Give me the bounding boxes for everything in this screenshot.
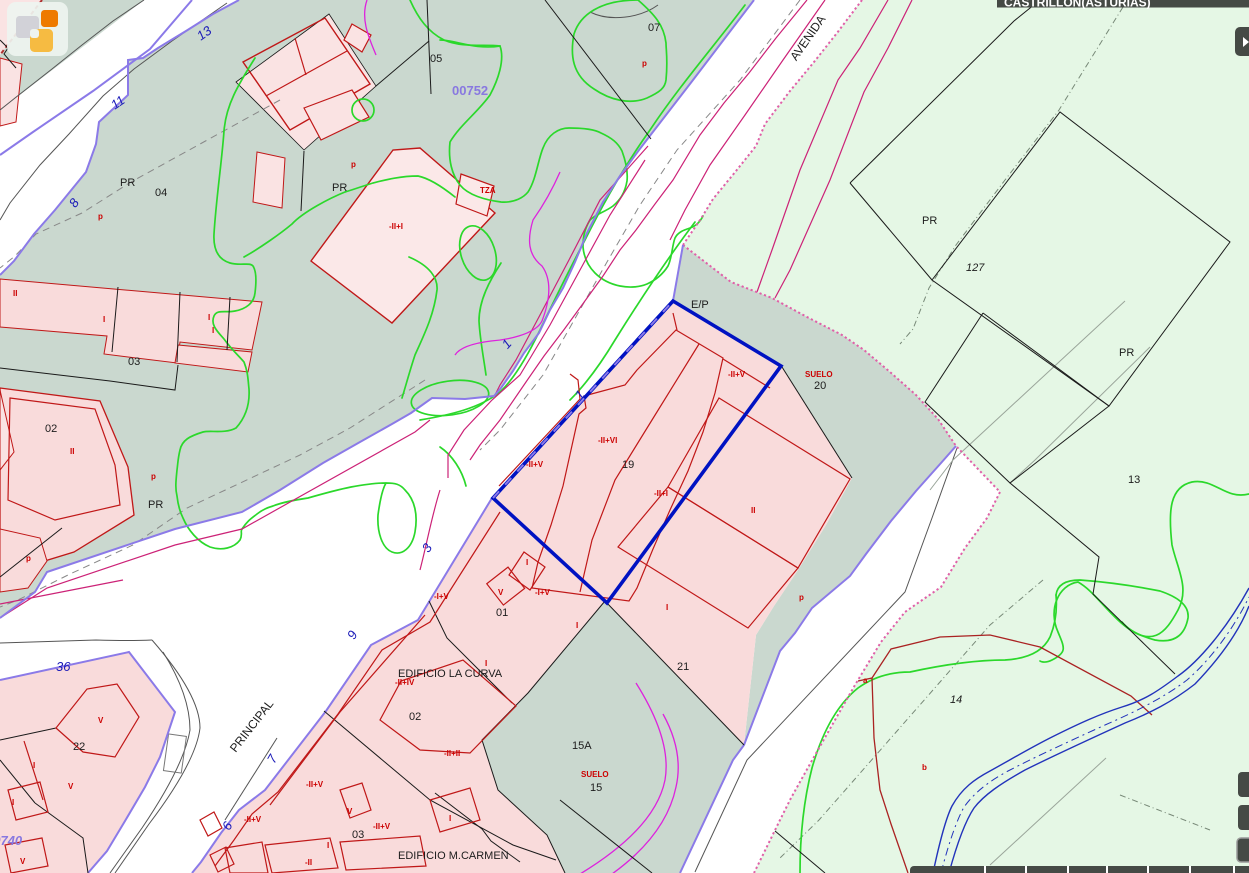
svg-text:II: II — [751, 506, 755, 515]
svg-text:I: I — [485, 659, 487, 668]
svg-text:I: I — [666, 603, 668, 612]
svg-text:-II+II: -II+II — [444, 749, 460, 758]
svg-text:127: 127 — [966, 262, 985, 274]
svg-text:05: 05 — [430, 53, 442, 65]
svg-text:I: I — [449, 814, 451, 823]
svg-text:a: a — [863, 676, 868, 685]
svg-text:15: 15 — [590, 782, 602, 794]
svg-text:-II+V: -II+V — [373, 822, 391, 831]
svg-text:19: 19 — [622, 459, 634, 471]
svg-text:-II+I: -II+I — [389, 222, 403, 231]
svg-text:36: 36 — [56, 659, 71, 674]
svg-text:-II+V: -II+V — [306, 780, 324, 789]
svg-text:V: V — [498, 588, 504, 597]
svg-text:04: 04 — [155, 187, 167, 199]
svg-text:20: 20 — [814, 380, 826, 392]
svg-text:-I+V: -I+V — [535, 588, 551, 597]
svg-text:p: p — [98, 212, 103, 221]
svg-text:PR: PR — [332, 182, 347, 194]
svg-text:-II+V: -II+V — [728, 370, 746, 379]
svg-text:p: p — [351, 160, 356, 169]
svg-text:I: I — [103, 315, 105, 324]
svg-text:I: I — [212, 326, 214, 335]
svg-text:01: 01 — [496, 607, 508, 619]
svg-text:02: 02 — [45, 423, 57, 435]
svg-text:I: I — [576, 621, 578, 630]
svg-text:p: p — [799, 593, 804, 602]
svg-text:V: V — [20, 857, 26, 866]
svg-text:TZA: TZA — [480, 186, 496, 195]
svg-text:02: 02 — [409, 711, 421, 723]
svg-text:03: 03 — [352, 829, 364, 841]
svg-text:p: p — [151, 472, 156, 481]
svg-text:SUELO: SUELO — [581, 770, 609, 779]
svg-text:15A: 15A — [572, 740, 592, 752]
svg-text:PR: PR — [1119, 347, 1134, 359]
svg-text:CASTRILLON(ASTURIAS): CASTRILLON(ASTURIAS) — [1004, 0, 1151, 10]
svg-text:V: V — [347, 807, 353, 816]
svg-text:-II+IV: -II+IV — [395, 678, 415, 687]
svg-text:-II: -II — [305, 858, 312, 867]
svg-text:b: b — [922, 763, 927, 772]
svg-text:E/P: E/P — [691, 299, 709, 311]
svg-text:I: I — [526, 558, 528, 567]
svg-text:II: II — [13, 289, 17, 298]
svg-text:V: V — [98, 716, 104, 725]
svg-text:I: I — [12, 798, 14, 807]
svg-text:PR: PR — [120, 177, 135, 189]
svg-text:SUELO: SUELO — [805, 370, 833, 379]
svg-text:03: 03 — [128, 356, 140, 368]
svg-text:V: V — [68, 782, 74, 791]
svg-text:I: I — [208, 313, 210, 322]
svg-text:07: 07 — [648, 22, 660, 34]
svg-text:PR: PR — [922, 215, 937, 227]
svg-text:EDIFICIO M.CARMEN: EDIFICIO M.CARMEN — [398, 850, 509, 862]
svg-text:I: I — [327, 841, 329, 850]
svg-text:p: p — [26, 554, 31, 563]
svg-text:PR: PR — [148, 499, 163, 511]
svg-text:09740: 09740 — [0, 833, 23, 848]
svg-text:00752: 00752 — [452, 83, 488, 98]
svg-text:21: 21 — [677, 661, 689, 673]
svg-text:-II+V: -II+V — [526, 460, 544, 469]
svg-text:-II+VI: -II+VI — [598, 436, 617, 445]
svg-text:-II+I: -II+I — [654, 489, 668, 498]
svg-text:II: II — [70, 447, 74, 456]
svg-text:-II+V: -II+V — [244, 815, 262, 824]
svg-text:-I+V: -I+V — [434, 592, 450, 601]
svg-text:I: I — [33, 761, 35, 770]
svg-text:14: 14 — [950, 694, 962, 706]
svg-text:p: p — [642, 59, 647, 68]
svg-text:13: 13 — [1128, 474, 1140, 486]
svg-text:22: 22 — [73, 741, 85, 753]
